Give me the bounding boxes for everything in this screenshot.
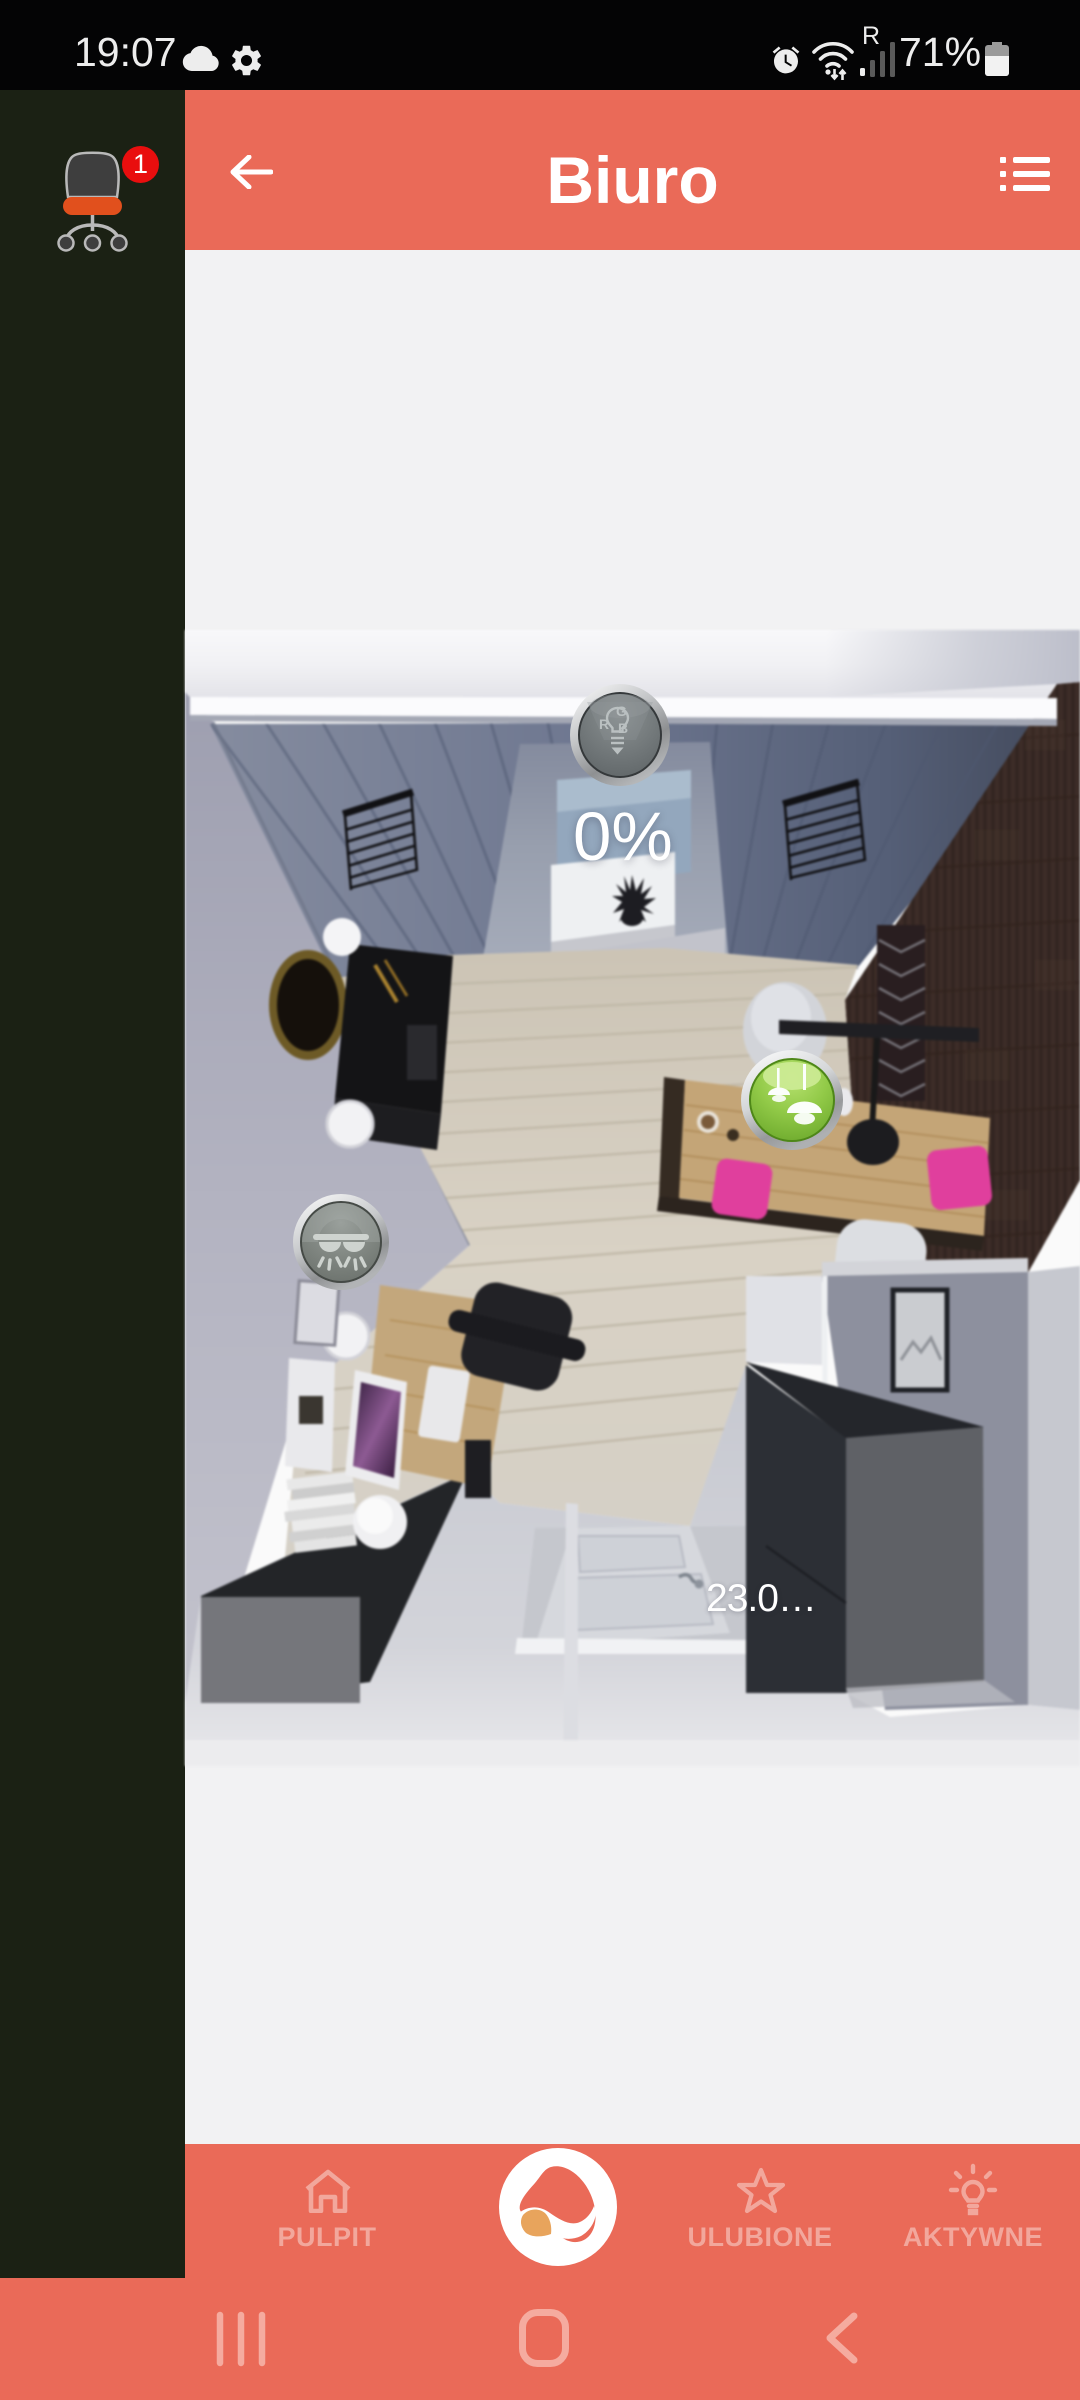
svg-text:B: B (618, 720, 628, 736)
svg-text:R: R (599, 716, 609, 732)
svg-text:G: G (616, 703, 627, 719)
